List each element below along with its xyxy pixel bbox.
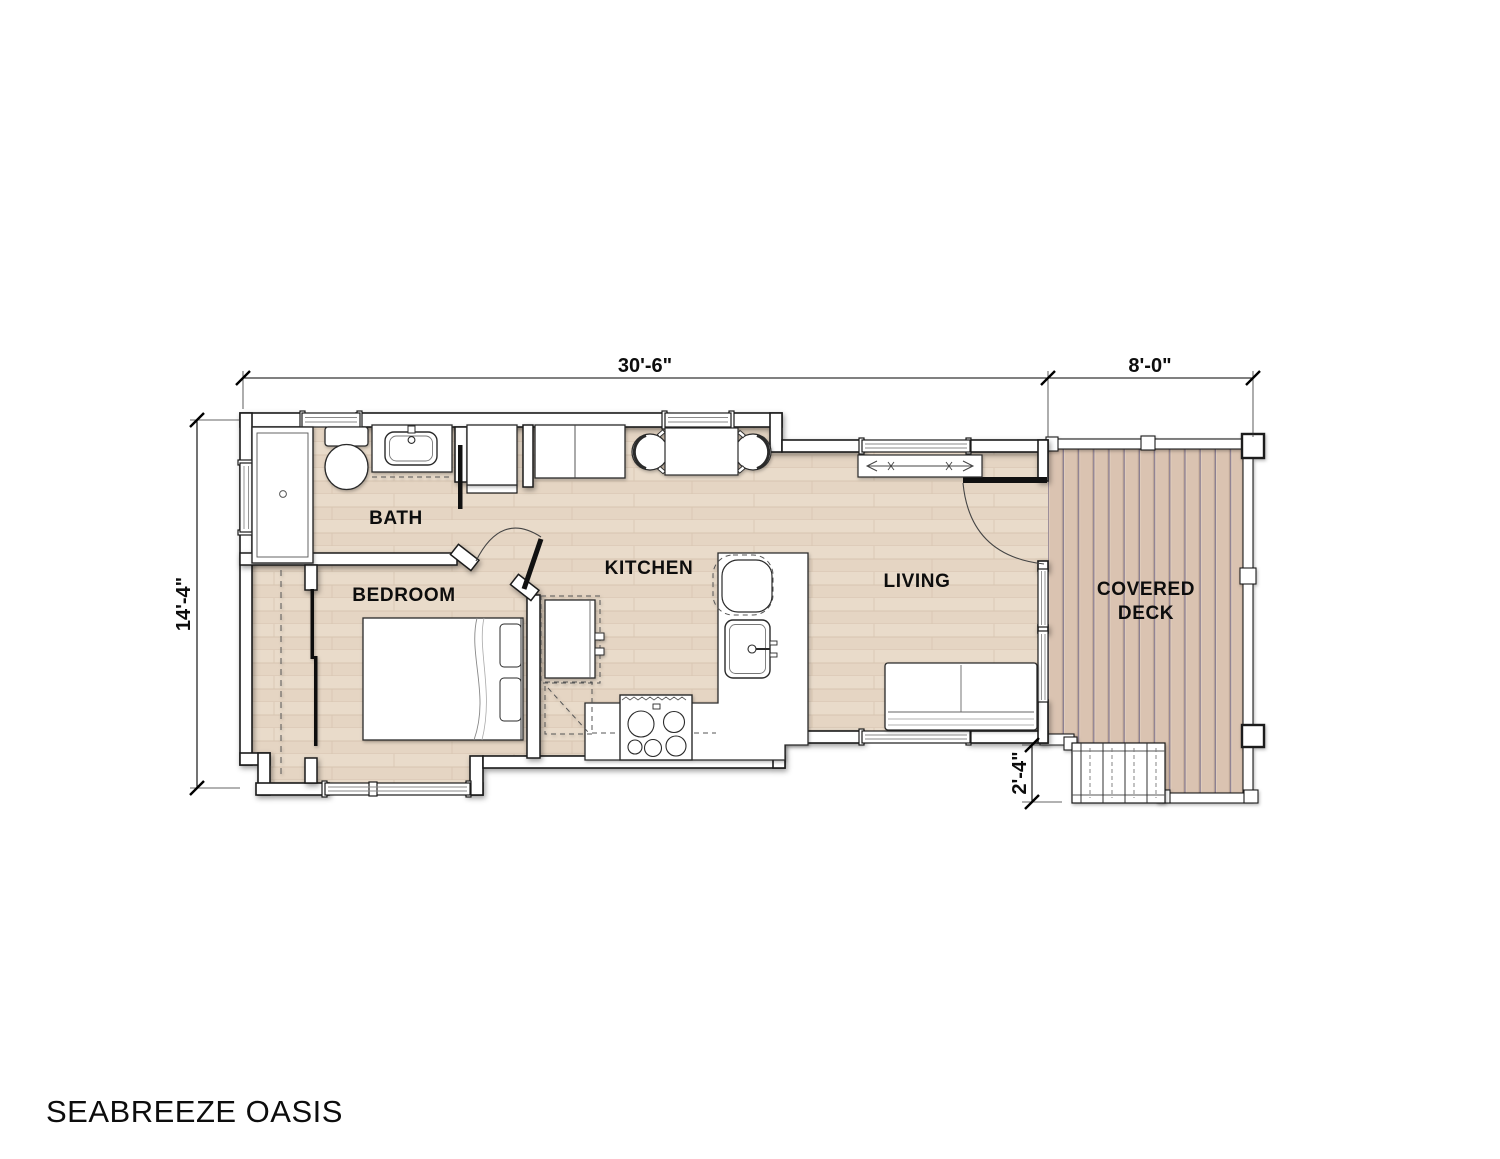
- window: [1038, 569, 1048, 627]
- floorplan-svg: BATH BEDROOM KITCHEN LIVING COVERED DECK: [0, 0, 1500, 1159]
- wall: [470, 756, 483, 795]
- window: [862, 440, 970, 452]
- bath-label: BATH: [369, 508, 423, 529]
- tv-console: [858, 455, 982, 477]
- deck-post-icon: [1244, 790, 1258, 803]
- bedroom-label: BEDROOM: [352, 585, 455, 606]
- shower-tub: [252, 427, 313, 563]
- deck-post-icon: [1141, 436, 1155, 450]
- wall: [1038, 700, 1048, 743]
- refrigerator: [541, 596, 604, 683]
- deck-post-icon: [1240, 568, 1256, 584]
- bed: [363, 618, 523, 740]
- living-label: LIVING: [884, 571, 951, 592]
- kitchen-label: KITCHEN: [605, 558, 694, 579]
- deck-door-leaf: [963, 477, 1047, 483]
- window: [325, 783, 470, 795]
- dim-label-deck-width: 8'-0": [1128, 355, 1171, 377]
- toilet: [325, 427, 368, 490]
- deck-stairs: [1072, 743, 1165, 803]
- floor-plan-page: BATH BEDROOM KITCHEN LIVING COVERED DECK: [0, 0, 1500, 1159]
- vanity-sink: [372, 425, 452, 477]
- closet-jamb: [305, 565, 317, 590]
- pillow: [500, 678, 521, 721]
- dim-label-stair-depth: 2'-4": [1009, 751, 1031, 794]
- window: [240, 463, 252, 532]
- covered-deck-label-line2: DECK: [1118, 603, 1174, 624]
- deck-post-icon: [1242, 434, 1264, 458]
- wall: [256, 783, 329, 795]
- pillow: [500, 624, 521, 667]
- wall: [523, 425, 533, 487]
- covered-deck-label-line1: COVERED: [1097, 579, 1195, 600]
- tall-cabinet: [467, 425, 517, 485]
- dining-table: [632, 428, 771, 475]
- stove: [620, 695, 692, 760]
- closet-jamb: [305, 758, 317, 783]
- wall: [770, 413, 782, 452]
- dim-label-main-width: 30'-6": [618, 355, 672, 377]
- window: [665, 413, 731, 427]
- kitchen-sink: [725, 620, 777, 678]
- dim-label-main-depth: 14'-4": [173, 577, 195, 631]
- window: [302, 413, 360, 427]
- upper-counter: [535, 425, 625, 478]
- wall: [968, 440, 1048, 452]
- wall: [527, 595, 540, 758]
- closet-door-panel: [467, 485, 517, 493]
- pocket-door-leaf: [458, 445, 463, 509]
- window: [862, 731, 970, 743]
- window: [1038, 631, 1048, 702]
- wall: [1038, 440, 1048, 481]
- plan-title: SEABREEZE OASIS: [46, 1094, 343, 1129]
- window-mullion: [369, 782, 377, 796]
- deck-rail-bottom: [1163, 793, 1253, 803]
- deck-post-icon: [1242, 725, 1264, 747]
- sofa: [885, 663, 1037, 730]
- wall: [782, 440, 864, 452]
